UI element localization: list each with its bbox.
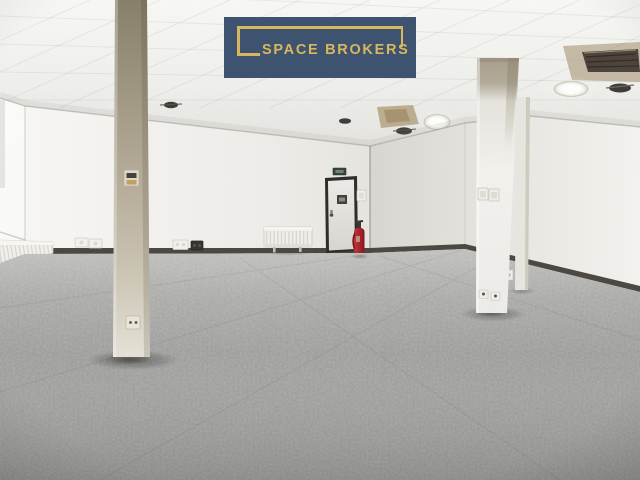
space-brokers-logo: SPACE BROKERS — [224, 17, 416, 78]
logo-text: SPACE BROKERS — [262, 42, 410, 58]
logo-border-top — [237, 26, 403, 29]
logo-border-left — [237, 26, 240, 56]
logo-border-bottom — [237, 53, 260, 56]
office-photo: SPACE BROKERS — [0, 0, 640, 480]
